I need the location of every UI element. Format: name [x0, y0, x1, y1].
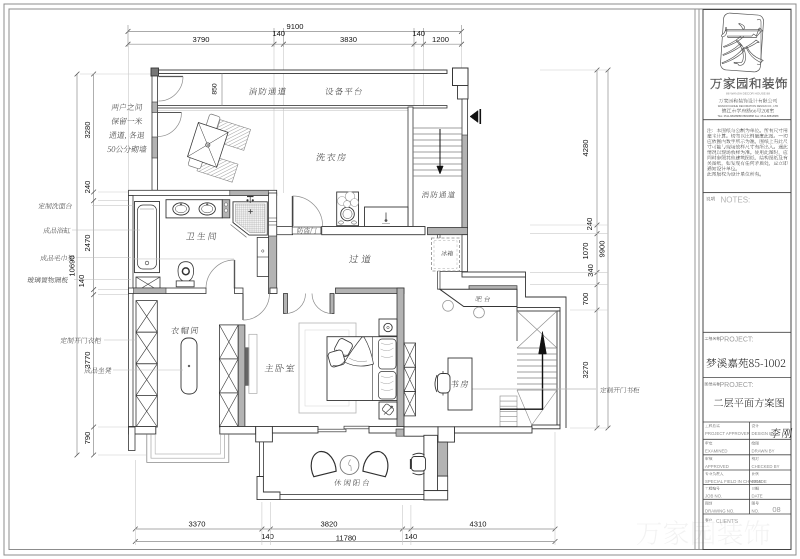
- svg-text:9900: 9900: [598, 241, 607, 258]
- svg-text:PROJECT:: PROJECT:: [720, 337, 754, 344]
- svg-text:3770: 3770: [83, 352, 92, 369]
- svg-text:3270: 3270: [581, 362, 590, 379]
- svg-text:CHECKED BY: CHECKED BY: [752, 464, 780, 469]
- svg-text:240: 240: [585, 218, 594, 231]
- svg-text:APPROVED: APPROVED: [705, 464, 729, 469]
- svg-text:3280: 3280: [83, 122, 92, 139]
- svg-text:1200: 1200: [432, 35, 449, 44]
- svg-text:140: 140: [77, 275, 86, 288]
- svg-text:3790: 3790: [193, 35, 210, 44]
- svg-text:PROJECT:: PROJECT:: [720, 382, 754, 389]
- svg-text:TEL: 0511-88488888 88818888: TEL: 0511-88488888 88818888 Fax: 0511-88…: [718, 114, 779, 118]
- svg-text:2470: 2470: [83, 235, 92, 252]
- svg-text:3820: 3820: [321, 520, 338, 529]
- svg-text:DATE: DATE: [752, 494, 763, 499]
- svg-text:11780: 11780: [336, 534, 357, 543]
- svg-text:9100: 9100: [287, 22, 304, 31]
- svg-text:DESIGN BY: DESIGN BY: [752, 431, 776, 436]
- svg-text:DRAWN BY: DRAWN BY: [752, 448, 775, 453]
- svg-text:CLIENT'S: CLIENT'S: [716, 519, 739, 525]
- svg-text:340: 340: [586, 264, 595, 277]
- svg-text:PROJECT APPROVER: PROJECT APPROVER: [705, 431, 750, 436]
- svg-text:NO.: NO.: [752, 508, 760, 513]
- svg-text:DRAWING NO.: DRAWING NO.: [705, 508, 734, 513]
- svg-text:790: 790: [83, 432, 92, 445]
- svg-text:850: 850: [212, 83, 219, 95]
- svg-text:EXAMINED: EXAMINED: [705, 448, 727, 453]
- svg-text:08: 08: [772, 505, 780, 514]
- svg-text:3830: 3830: [340, 35, 357, 44]
- svg-text:240: 240: [83, 181, 92, 194]
- svg-text:WANJIAYUANHE DECORATION DESI: WANJIAYUANHE DECORATION DESIGN CO., LTD: [718, 104, 778, 108]
- svg-text:3370: 3370: [189, 520, 206, 529]
- svg-text:140: 140: [272, 29, 285, 38]
- svg-text:GRADE: GRADE: [752, 479, 767, 484]
- svg-text:700: 700: [581, 293, 590, 306]
- svg-text:NOTES:: NOTES:: [721, 195, 751, 204]
- svg-text:88 WANJIA DECOR HOUSE 88: 88 WANJIA DECOR HOUSE 88: [726, 92, 770, 96]
- svg-text:140: 140: [261, 532, 274, 541]
- svg-text:1070: 1070: [581, 243, 590, 260]
- svg-text:140: 140: [412, 29, 425, 38]
- svg-text:JOB NO.: JOB NO.: [705, 494, 722, 499]
- svg-text:4310: 4310: [470, 520, 487, 529]
- svg-text:4280: 4280: [581, 140, 590, 157]
